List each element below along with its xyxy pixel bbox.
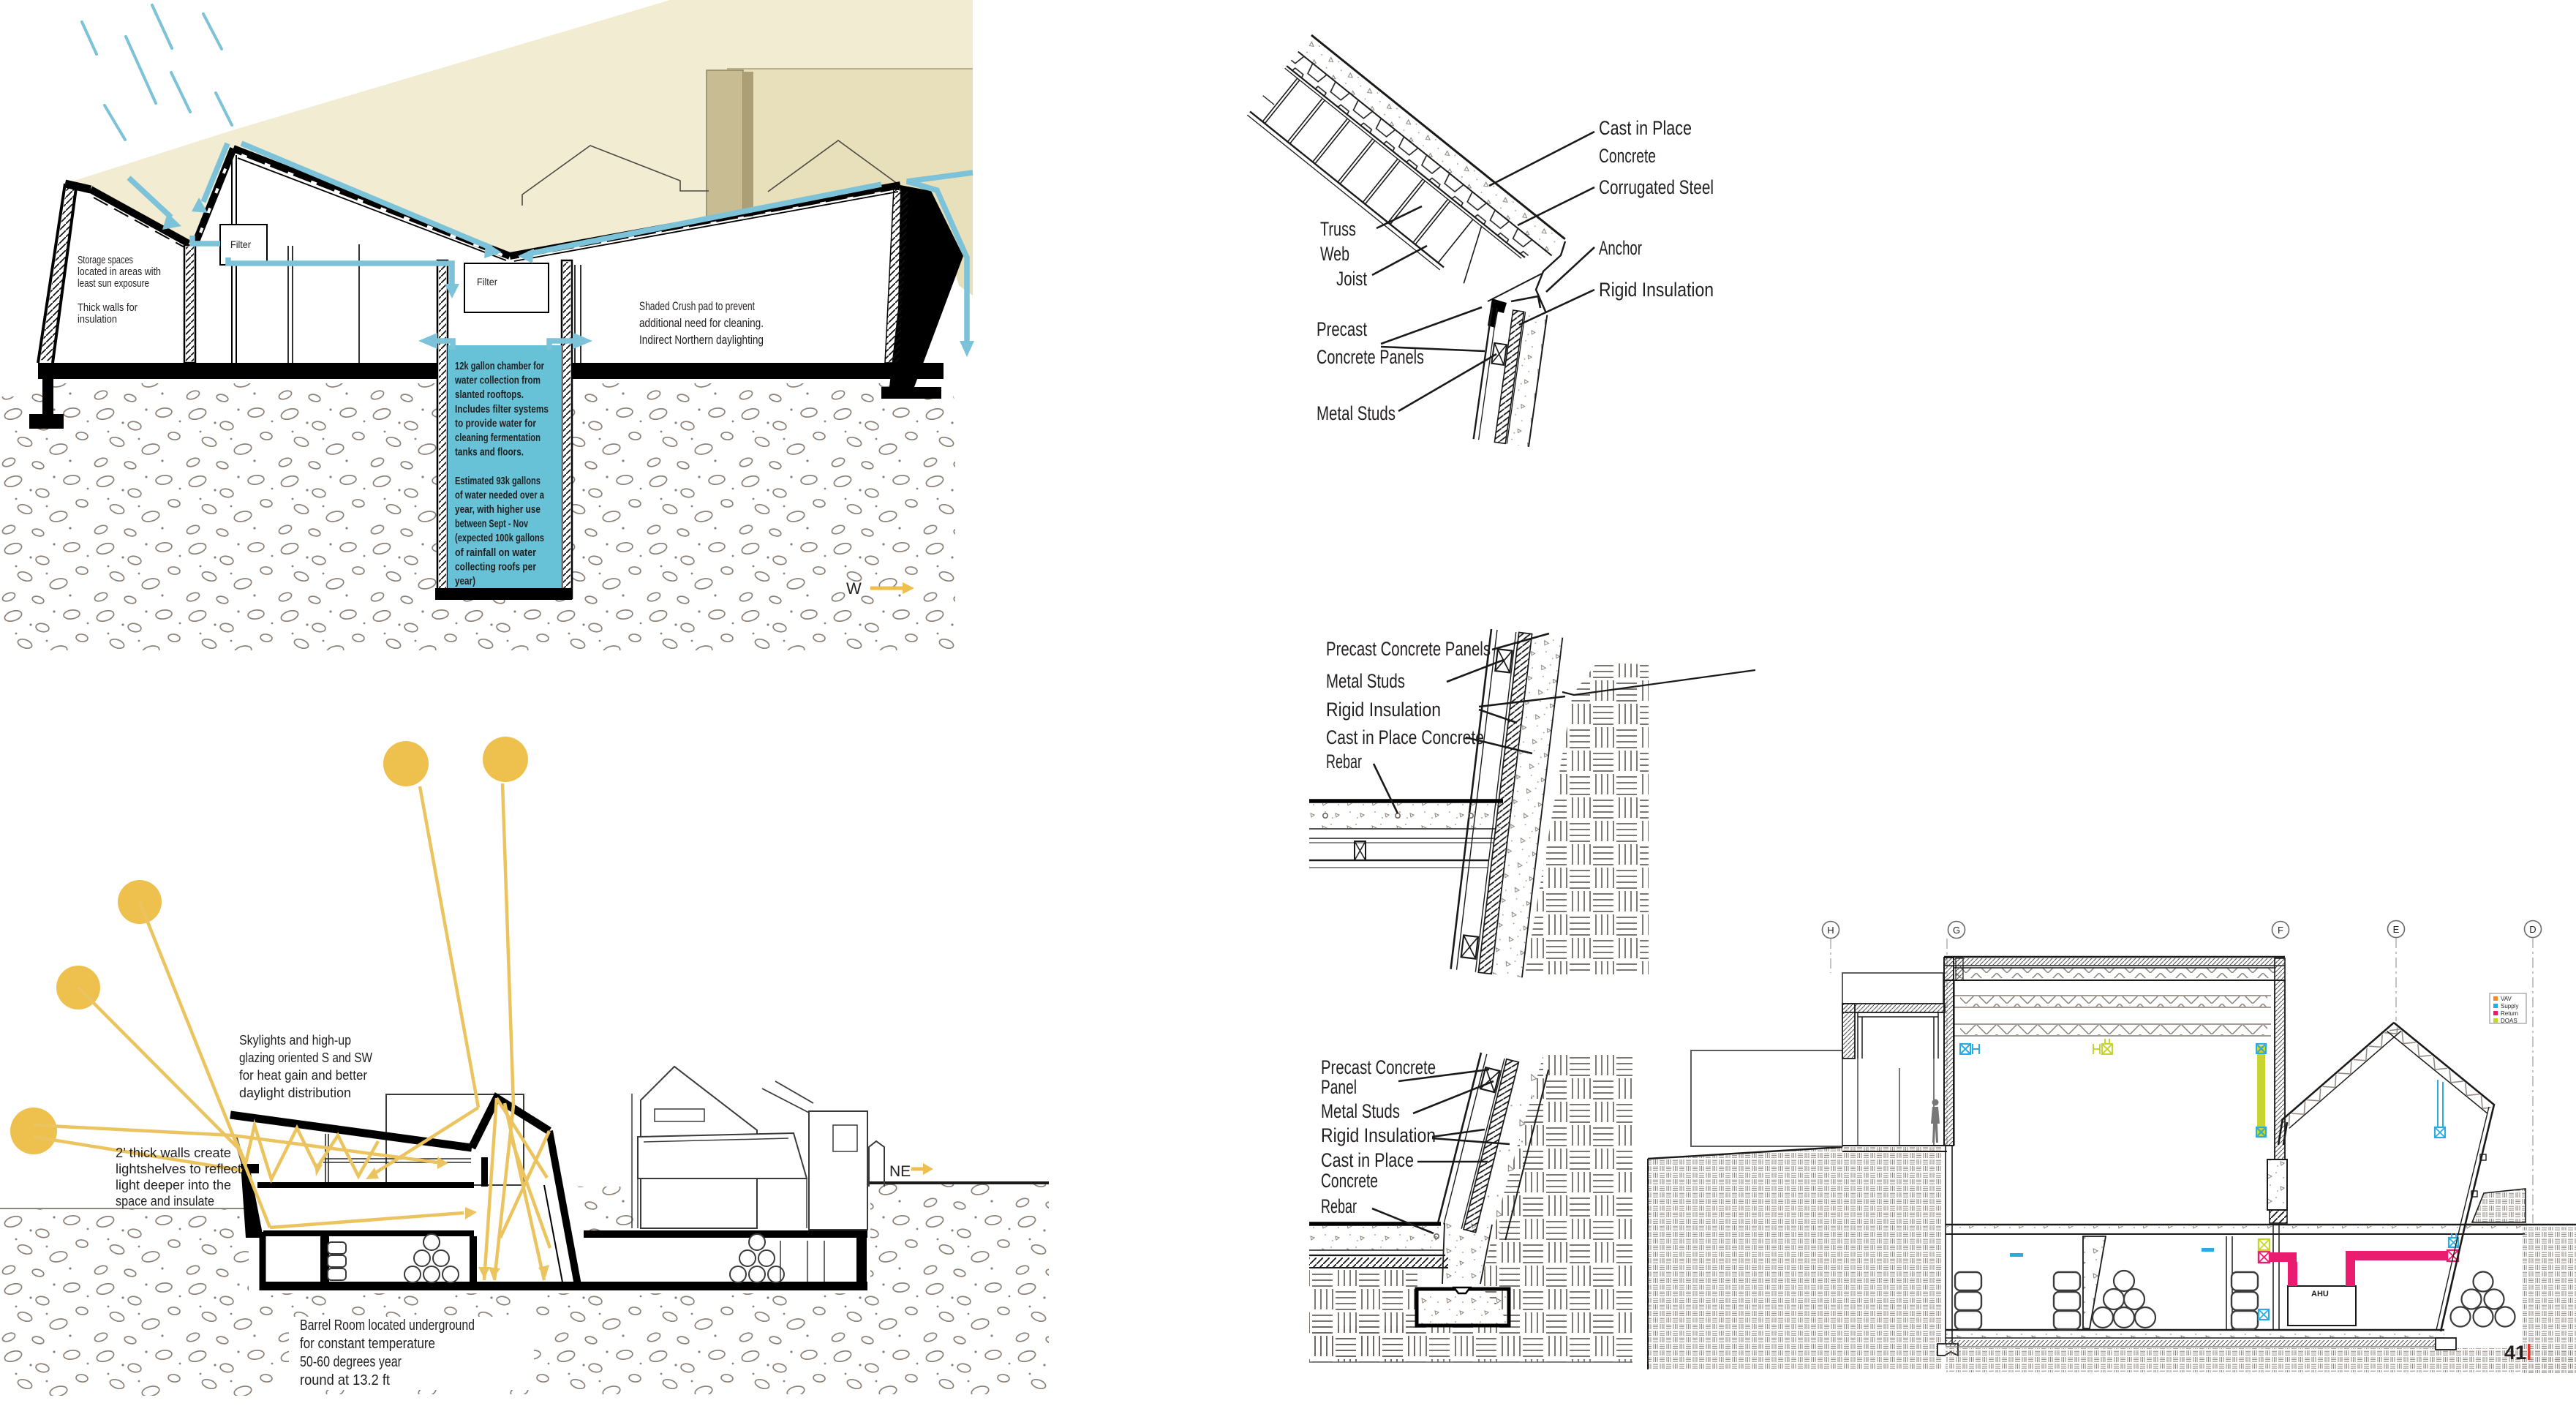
- svg-text:Panel: Panel: [1321, 1076, 1357, 1098]
- svg-text:of water needed over a: of water needed over a: [455, 489, 544, 501]
- svg-text:water collection from: water collection from: [454, 375, 541, 387]
- svg-text:Return: Return: [2501, 1010, 2518, 1017]
- svg-text:Rigid Insulation: Rigid Insulation: [1599, 279, 1714, 301]
- svg-text:insulation: insulation: [78, 313, 117, 326]
- svg-text:Filter: Filter: [230, 238, 251, 250]
- svg-text:12k gallon chamber for: 12k gallon chamber for: [455, 360, 544, 372]
- svg-text:tanks and floors.: tanks and floors.: [455, 446, 524, 459]
- svg-text:Cast in Place Concrete: Cast in Place Concrete: [1326, 726, 1484, 748]
- svg-text:located in areas with: located in areas with: [78, 266, 161, 278]
- svg-text:W: W: [846, 579, 862, 598]
- svg-text:Anchor: Anchor: [1599, 237, 1642, 259]
- svg-text:Joist: Joist: [1336, 268, 1367, 290]
- svg-text:least sun exposure: least sun exposure: [78, 277, 149, 290]
- svg-text:Rigid Insulation: Rigid Insulation: [1321, 1124, 1436, 1146]
- svg-text:of rainfall on water: of rainfall on water: [455, 546, 536, 559]
- svg-text:Rigid Insulation: Rigid Insulation: [1326, 699, 1441, 721]
- svg-text:round at 13.2 ft: round at 13.2 ft: [300, 1372, 390, 1388]
- svg-text:Cast in Place: Cast in Place: [1321, 1149, 1414, 1171]
- svg-text:Rebar: Rebar: [1321, 1195, 1357, 1217]
- svg-text:Cast in Place: Cast in Place: [1599, 117, 1692, 139]
- svg-text:Metal Studs: Metal Studs: [1321, 1100, 1400, 1122]
- svg-text:between Sept - Nov: between Sept - Nov: [455, 518, 528, 530]
- svg-text:Thick walls for: Thick walls for: [78, 301, 138, 314]
- svg-text:year, with higher use: year, with higher use: [455, 503, 541, 516]
- svg-text:2’ thick walls create: 2’ thick walls create: [116, 1145, 231, 1160]
- svg-text:for constant temperature: for constant temperature: [300, 1336, 435, 1352]
- svg-text:Barrel Room located undergroun: Barrel Room located underground: [300, 1317, 475, 1334]
- svg-text:Concrete Panels: Concrete Panels: [1317, 346, 1424, 368]
- svg-text:Filter: Filter: [477, 276, 497, 287]
- svg-text:daylight distribution: daylight distribution: [239, 1085, 351, 1100]
- svg-text:Truss: Truss: [1320, 218, 1356, 240]
- svg-text:AHU: AHU: [2311, 1290, 2329, 1298]
- svg-text:Concrete: Concrete: [1599, 145, 1656, 167]
- svg-text:Supply: Supply: [2501, 1003, 2518, 1010]
- svg-text:Indirect Northern daylighting: Indirect Northern daylighting: [639, 334, 764, 347]
- svg-text:Precast Concrete: Precast Concrete: [1321, 1056, 1436, 1078]
- svg-text:Web: Web: [1320, 243, 1349, 265]
- svg-text:VAV: VAV: [2501, 996, 2512, 1002]
- svg-text:H: H: [1827, 925, 1834, 936]
- svg-text:Precast Concrete Panels: Precast Concrete Panels: [1326, 638, 1491, 660]
- svg-text:to provide water for: to provide water for: [455, 417, 536, 429]
- svg-text:Metal Studs: Metal Studs: [1317, 402, 1396, 424]
- svg-text:collecting roofs per: collecting roofs per: [455, 560, 536, 573]
- svg-text:(expected 100k gallons: (expected 100k gallons: [455, 532, 544, 544]
- svg-text:glazing oriented S and SW: glazing oriented S and SW: [239, 1050, 372, 1065]
- svg-text:50-60 degrees year: 50-60 degrees year: [300, 1354, 402, 1370]
- svg-text:E: E: [2393, 924, 2400, 935]
- svg-text:light deeper into the: light deeper into the: [116, 1177, 231, 1192]
- svg-text:Includes filter systems: Includes filter systems: [455, 403, 549, 416]
- svg-text:NE: NE: [889, 1163, 911, 1180]
- svg-text:space and insulate: space and insulate: [116, 1193, 214, 1208]
- svg-text:Estimated 93k gallons: Estimated 93k gallons: [455, 475, 541, 487]
- svg-text:Skylights and high-up: Skylights and high-up: [239, 1032, 351, 1048]
- svg-text:lightshelves to reflect: lightshelves to reflect: [116, 1161, 241, 1176]
- svg-text:DOAS: DOAS: [2501, 1018, 2517, 1024]
- svg-text:Corrugated Steel: Corrugated Steel: [1599, 176, 1714, 198]
- svg-text:Metal Studs: Metal Studs: [1326, 670, 1405, 692]
- svg-text:Rebar: Rebar: [1326, 751, 1362, 772]
- svg-text:G: G: [1953, 925, 1960, 936]
- svg-text:cleaning fermentation: cleaning fermentation: [455, 432, 541, 444]
- svg-text:Shaded Crush pad to prevent: Shaded Crush pad to prevent: [639, 300, 755, 313]
- svg-text:Precast: Precast: [1317, 318, 1367, 340]
- svg-text:for heat gain and better: for heat gain and better: [239, 1067, 367, 1083]
- svg-text:slanted rooftops.: slanted rooftops.: [455, 388, 524, 401]
- svg-text:Storage spaces: Storage spaces: [78, 254, 133, 266]
- svg-text:41: 41: [2504, 1342, 2526, 1364]
- svg-text:F: F: [2278, 925, 2283, 936]
- svg-text:additional need for cleaning.: additional need for cleaning.: [639, 317, 764, 330]
- svg-text:Concrete: Concrete: [1321, 1170, 1378, 1192]
- svg-text:D: D: [2529, 924, 2536, 935]
- svg-text:year): year): [455, 575, 475, 587]
